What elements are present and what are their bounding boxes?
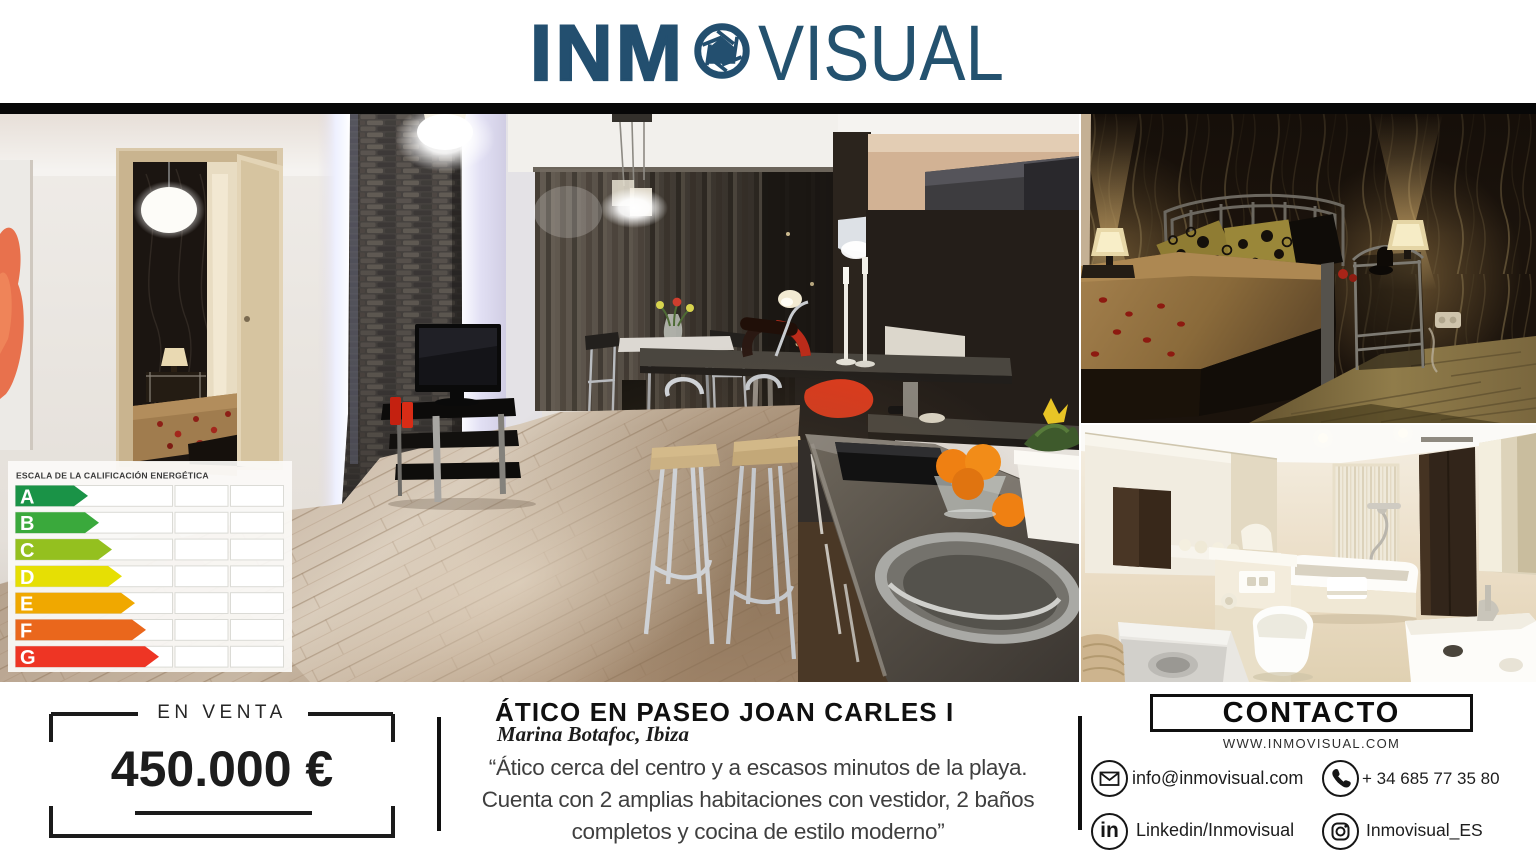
svg-text:C: C xyxy=(20,540,34,562)
svg-text:E: E xyxy=(20,594,33,616)
svg-text:EN VENTA: EN VENTA xyxy=(157,702,287,723)
svg-text:G: G xyxy=(20,647,36,669)
svg-text:A: A xyxy=(20,486,34,508)
svg-text:450.000 €: 450.000 € xyxy=(111,741,333,797)
svg-text:ESCALA DE LA CALIFICACIÓN ENER: ESCALA DE LA CALIFICACIÓN ENERGÉTICA xyxy=(16,470,209,481)
svg-text:B: B xyxy=(20,513,34,535)
svg-text:D: D xyxy=(20,567,34,589)
svg-text:F: F xyxy=(20,620,32,642)
